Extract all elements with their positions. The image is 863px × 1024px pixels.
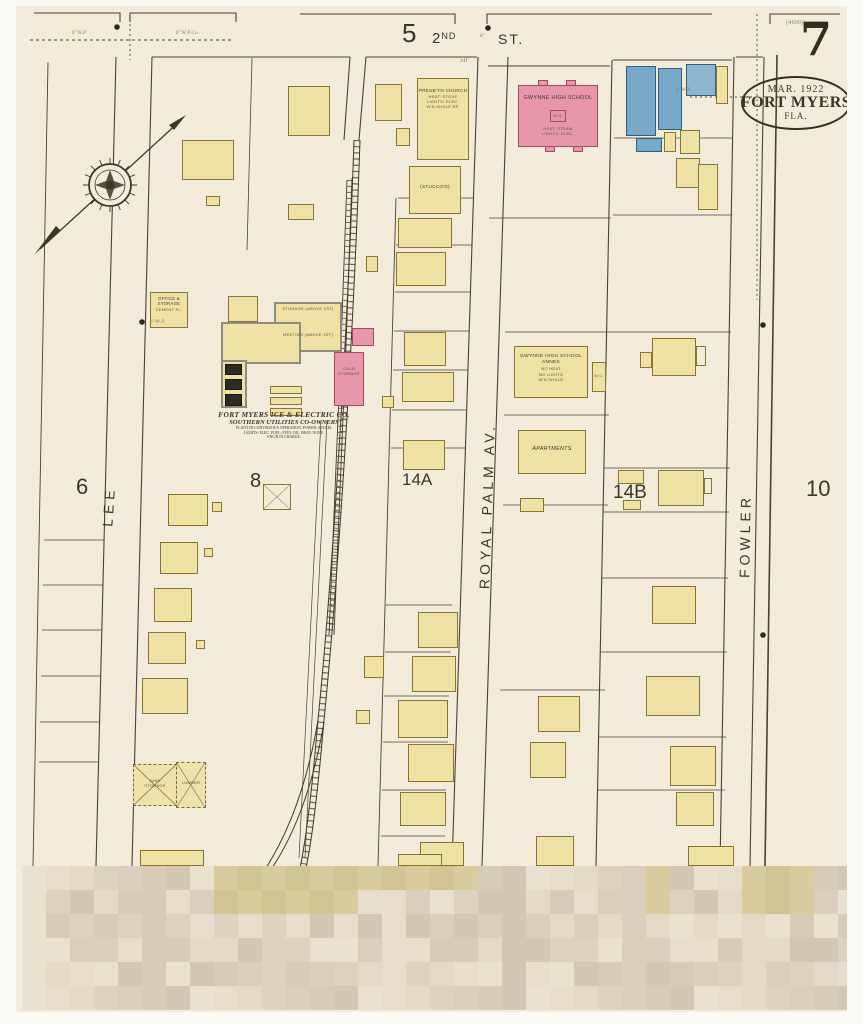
mosaic-cell bbox=[622, 986, 646, 1010]
mosaic-cell bbox=[118, 962, 142, 986]
storage-above-label: STORAGE (ABOVE 1ST) bbox=[276, 306, 340, 311]
mosaic-cell bbox=[310, 938, 334, 962]
building-outbuilding bbox=[204, 548, 213, 557]
mosaic-cell bbox=[310, 914, 334, 938]
mosaic-cell bbox=[670, 890, 694, 914]
mosaic-cell bbox=[358, 866, 382, 890]
mosaic-cell bbox=[742, 938, 766, 962]
mosaic-cell bbox=[526, 938, 550, 962]
mosaic-cell bbox=[70, 962, 94, 986]
building-cold-storage bbox=[334, 352, 364, 406]
building-dwelling bbox=[400, 792, 446, 826]
block-number-8: 8 bbox=[250, 470, 261, 493]
boiler bbox=[225, 364, 242, 375]
mosaic-cell bbox=[502, 962, 526, 986]
building-dwelling bbox=[142, 678, 188, 714]
building-dwelling bbox=[658, 470, 704, 506]
mosaic-cell bbox=[454, 938, 478, 962]
water-main-label: 6''W.P. bbox=[150, 320, 165, 327]
mosaic-cell bbox=[46, 866, 70, 890]
mosaic-cell bbox=[22, 962, 46, 986]
mosaic-cell bbox=[142, 986, 166, 1010]
mosaic-cell bbox=[766, 914, 790, 938]
mosaic-cell bbox=[790, 938, 814, 962]
stamp-state: Fla. bbox=[784, 112, 807, 121]
building-outbuilding bbox=[664, 132, 676, 152]
mosaic-cell bbox=[70, 986, 94, 1010]
building-outbuilding bbox=[288, 204, 314, 220]
stamp-city: Fort Myers bbox=[741, 95, 851, 112]
building-plant-wing bbox=[221, 322, 301, 364]
building-outbuilding bbox=[680, 130, 700, 154]
mosaic-cell bbox=[430, 986, 454, 1010]
mosaic-cell bbox=[166, 914, 190, 938]
mosaic-cell bbox=[646, 962, 670, 986]
mosaic-cell bbox=[598, 866, 622, 890]
mosaic-cell bbox=[262, 890, 286, 914]
mosaic-cell bbox=[742, 962, 766, 986]
mosaic-cell bbox=[46, 914, 70, 938]
mosaic-cell bbox=[646, 914, 670, 938]
mosaic-cell bbox=[742, 914, 766, 938]
school-entry bbox=[545, 146, 555, 152]
mosaic-cell bbox=[502, 914, 526, 938]
building-dwelling bbox=[652, 338, 696, 376]
mosaic-cell bbox=[526, 962, 550, 986]
mosaic-cell bbox=[166, 986, 190, 1010]
building-outbuilding bbox=[196, 640, 205, 649]
mosaic-cell bbox=[430, 938, 454, 962]
building-dwelling bbox=[536, 836, 574, 866]
mosaic-cell bbox=[46, 890, 70, 914]
mosaic-cell bbox=[502, 890, 526, 914]
mosaic-cell bbox=[646, 890, 670, 914]
mosaic-cell bbox=[598, 986, 622, 1010]
mosaic-cell bbox=[406, 890, 430, 914]
mosaic-cell bbox=[262, 914, 286, 938]
mosaic-cell bbox=[646, 986, 670, 1010]
mosaic-cell bbox=[526, 890, 550, 914]
mosaic-cell bbox=[190, 914, 214, 938]
mosaic-cell bbox=[382, 986, 406, 1010]
building-outbuilding bbox=[640, 352, 652, 368]
building-dwelling bbox=[676, 158, 700, 188]
second-street-name: 2ND bbox=[432, 30, 456, 47]
mosaic-cell bbox=[382, 890, 406, 914]
building-open-structure bbox=[263, 484, 291, 510]
mosaic-cell bbox=[118, 914, 142, 938]
mosaic-cell bbox=[238, 962, 262, 986]
mosaic-cell bbox=[790, 986, 814, 1010]
mosaic-cell bbox=[718, 962, 742, 986]
mosaic-cell bbox=[94, 914, 118, 938]
mosaic-cell bbox=[190, 986, 214, 1010]
mosaic-cell bbox=[406, 962, 430, 986]
mosaic-cell bbox=[622, 938, 646, 962]
building-outbuilding bbox=[396, 128, 410, 146]
plant-caption: Fort Myers Ice & Electric Co. Southern U… bbox=[218, 410, 350, 440]
mosaic-cell bbox=[142, 890, 166, 914]
mosaic-cell bbox=[238, 866, 262, 890]
mosaic-cell bbox=[406, 938, 430, 962]
building-dwelling bbox=[148, 632, 186, 664]
mosaic-cell bbox=[286, 962, 310, 986]
compass-rose-icon bbox=[34, 115, 186, 255]
mosaic-cell bbox=[790, 962, 814, 986]
building-dwelling bbox=[154, 588, 192, 622]
mosaic-cell bbox=[574, 962, 598, 986]
mosaic-cell bbox=[358, 986, 382, 1010]
mosaic-cell bbox=[190, 962, 214, 986]
building-dwelling bbox=[676, 792, 714, 826]
mosaic-cell bbox=[334, 914, 358, 938]
wc-label: W.C. bbox=[591, 373, 607, 378]
mosaic-cell bbox=[718, 938, 742, 962]
mosaic-cell bbox=[70, 938, 94, 962]
mosaic-cell bbox=[70, 866, 94, 890]
building-dwelling bbox=[530, 742, 566, 778]
mosaic-cell bbox=[238, 938, 262, 962]
mosaic-cell bbox=[478, 890, 502, 914]
mosaic-cell bbox=[166, 866, 190, 890]
mosaic-cell bbox=[454, 866, 478, 890]
building-dwelling bbox=[538, 696, 580, 732]
mosaic-cell bbox=[142, 914, 166, 938]
mosaic-cell bbox=[814, 890, 838, 914]
mosaic-cell bbox=[598, 938, 622, 962]
mosaic-cell bbox=[334, 986, 358, 1010]
building-dwelling bbox=[698, 164, 718, 210]
mosaic-cell bbox=[454, 962, 478, 986]
building-dwelling bbox=[412, 656, 456, 692]
mosaic-cell bbox=[406, 866, 430, 890]
mosaic-cell bbox=[310, 962, 334, 986]
mosaic-cell bbox=[646, 866, 670, 890]
building-concrete bbox=[626, 66, 656, 136]
mosaic-cell bbox=[742, 890, 766, 914]
mosaic-cell bbox=[406, 986, 430, 1010]
building-outbuilding bbox=[520, 498, 544, 512]
building-outbuilding bbox=[212, 502, 222, 512]
mosaic-cell bbox=[814, 962, 838, 986]
mosaic-cell bbox=[598, 914, 622, 938]
building-plant-annex bbox=[352, 328, 374, 346]
mosaic-cell bbox=[358, 914, 382, 938]
boiler bbox=[225, 394, 242, 406]
mosaic-cell bbox=[142, 962, 166, 986]
building-concrete-small bbox=[636, 138, 662, 152]
mosaic-cell bbox=[166, 890, 190, 914]
mosaic-cell bbox=[766, 986, 790, 1010]
mosaic-cell bbox=[70, 914, 94, 938]
mosaic-cell bbox=[430, 866, 454, 890]
building-dwelling bbox=[288, 86, 330, 136]
mosaic-cell bbox=[670, 938, 694, 962]
mosaic-cell bbox=[286, 914, 310, 938]
title-stamp: Mar. 1922 Fort Myers Fla. bbox=[741, 76, 851, 130]
church-label: PRESB'YN CHURCH HEAT: STOVE LIGHTS: ELEC… bbox=[416, 88, 470, 110]
water-main-label: 6''W.P. bbox=[72, 31, 87, 38]
mosaic-cell bbox=[334, 890, 358, 914]
building-repair-shop bbox=[228, 296, 258, 322]
mosaic-cell bbox=[358, 962, 382, 986]
mosaic-cell bbox=[814, 866, 838, 890]
cold-storage-label: COLDSTORAGE bbox=[333, 366, 365, 376]
mosaic-cell bbox=[214, 962, 238, 986]
mosaic-cell bbox=[550, 938, 574, 962]
building-dwelling bbox=[670, 746, 716, 786]
mosaic-cell bbox=[670, 914, 694, 938]
scan-margin bbox=[0, 0, 16, 1024]
mosaic-cell bbox=[502, 938, 526, 962]
mosaic-cell bbox=[502, 986, 526, 1010]
annex-label: GWYNNE HIGH SCHOOLANNEX NO HEAT NO LIGHT… bbox=[513, 354, 589, 382]
mosaic-cell bbox=[790, 914, 814, 938]
mosaic-cell bbox=[430, 890, 454, 914]
mosaic-cell bbox=[622, 866, 646, 890]
stuccod-label: (STUCCO'D) bbox=[408, 184, 462, 190]
mosaic-cell bbox=[574, 986, 598, 1010]
mosaic-cell bbox=[142, 938, 166, 962]
mosaic-cell bbox=[526, 986, 550, 1010]
building-dwelling bbox=[375, 84, 402, 121]
apartments-label: APARTMENTS bbox=[518, 446, 586, 453]
building-partial bbox=[398, 854, 442, 866]
mosaic-cell bbox=[286, 986, 310, 1010]
mosaic-cell bbox=[454, 986, 478, 1010]
mosaic-cell bbox=[550, 914, 574, 938]
block-number-14a: 14A bbox=[402, 470, 432, 490]
building-dwelling bbox=[688, 846, 734, 866]
mosaic-cell bbox=[478, 986, 502, 1010]
mosaic-cell bbox=[694, 890, 718, 914]
mosaic-cell bbox=[22, 866, 46, 890]
mosaic-cell bbox=[454, 914, 478, 938]
mosaic-cell bbox=[814, 938, 838, 962]
mosaic-cell bbox=[526, 914, 550, 938]
building-dwelling bbox=[182, 140, 234, 180]
mosaic-cell bbox=[478, 962, 502, 986]
scan-margin bbox=[0, 1012, 863, 1024]
mosaic-cell bbox=[622, 914, 646, 938]
mosaic-cell bbox=[334, 962, 358, 986]
mosaic-cell bbox=[598, 962, 622, 986]
school-bay bbox=[566, 80, 576, 86]
mosaic-cell bbox=[190, 866, 214, 890]
building-frame-annex bbox=[716, 66, 728, 104]
mosaic-cell bbox=[766, 890, 790, 914]
mosaic-cell bbox=[670, 986, 694, 1010]
office-label: OFFICE &STORAGE CEMENT FL. bbox=[149, 296, 189, 312]
building-outbuilding bbox=[382, 396, 394, 408]
mosaic-cell bbox=[334, 938, 358, 962]
mosaic-cell bbox=[574, 914, 598, 938]
water-main-label: 6''W.P. bbox=[676, 88, 691, 95]
second-street-suffix: ST. bbox=[498, 31, 524, 47]
mosaic-cell bbox=[718, 986, 742, 1010]
scan-margin bbox=[0, 0, 863, 6]
building-stuccoed bbox=[409, 166, 461, 214]
mosaic-cell bbox=[742, 866, 766, 890]
tank bbox=[270, 397, 302, 405]
mosaic-cell bbox=[382, 914, 406, 938]
mosaic-cell bbox=[214, 986, 238, 1010]
mosaic-cell bbox=[790, 866, 814, 890]
mosaic-cell bbox=[382, 938, 406, 962]
mosaic-cell bbox=[94, 938, 118, 962]
mosaic-cell bbox=[550, 962, 574, 986]
mosaic-cell bbox=[286, 866, 310, 890]
junk-storage-label: JUNKSTORAGE bbox=[133, 778, 177, 788]
mosaic-cell bbox=[550, 890, 574, 914]
mosaic-cell bbox=[118, 890, 142, 914]
mosaic-cell bbox=[286, 938, 310, 962]
water-main-label: 6''W.P.Co. bbox=[176, 31, 199, 38]
mosaic-cell bbox=[286, 890, 310, 914]
mosaic-cell bbox=[478, 866, 502, 890]
mosaic-cell bbox=[574, 890, 598, 914]
mosaic-cell bbox=[310, 986, 334, 1010]
mosaic-cell bbox=[310, 866, 334, 890]
sanborn-map-sheet: 5 2ND ST. 7 Mar. 1922 Fort Myers Fla. (4… bbox=[0, 0, 863, 1024]
mosaic-cell bbox=[430, 914, 454, 938]
building-dwelling bbox=[398, 700, 448, 738]
mosaic-cell bbox=[574, 866, 598, 890]
mosaic-cell bbox=[526, 866, 550, 890]
building-dwelling bbox=[646, 676, 700, 716]
street-label-fowler: FOWLER bbox=[736, 481, 754, 591]
mosaic-cell bbox=[670, 962, 694, 986]
scan-margin bbox=[847, 0, 863, 1024]
mosaic-cell bbox=[214, 938, 238, 962]
mosaic-cell bbox=[118, 866, 142, 890]
school-wg-label: W.G. bbox=[550, 113, 566, 118]
building-outbuilding bbox=[206, 196, 220, 206]
school-entry bbox=[573, 146, 583, 152]
mosaic-cell bbox=[310, 890, 334, 914]
lumber-label: LUMBER bbox=[174, 780, 208, 785]
block-number-14b: 14B bbox=[613, 482, 647, 504]
mosaic-cell bbox=[694, 914, 718, 938]
mosaic-cell bbox=[478, 938, 502, 962]
mosaic-cell bbox=[22, 890, 46, 914]
mosaic-cell bbox=[22, 938, 46, 962]
mosaic-cell bbox=[766, 866, 790, 890]
mosaic-cell bbox=[166, 938, 190, 962]
building-dwelling bbox=[403, 440, 445, 470]
mosaic-cell bbox=[70, 890, 94, 914]
redacted-blur-region bbox=[22, 866, 862, 1012]
mosaic-cell bbox=[382, 866, 406, 890]
mosaic-cell bbox=[142, 866, 166, 890]
mosaic-cell bbox=[790, 890, 814, 914]
school-notes: HEAT: STEAMLIGHTS: ELEC. bbox=[528, 126, 588, 136]
mosaic-cell bbox=[646, 938, 670, 962]
building-dwelling bbox=[404, 332, 446, 366]
mosaic-cell bbox=[430, 962, 454, 986]
building-outbuilding bbox=[356, 710, 370, 724]
frontage-dimension: 50' bbox=[460, 56, 469, 65]
mosaic-cell bbox=[814, 914, 838, 938]
school-bay bbox=[538, 80, 548, 86]
tank bbox=[270, 386, 302, 394]
mosaic-cell bbox=[94, 962, 118, 986]
sheet-number: 7 bbox=[800, 12, 832, 66]
mosaic-cell bbox=[550, 866, 574, 890]
block-number-6: 6 bbox=[76, 474, 88, 500]
mosaic-cell bbox=[118, 986, 142, 1010]
mosaic-cell bbox=[814, 986, 838, 1010]
building-dwelling bbox=[402, 372, 454, 402]
mosaic-cell bbox=[166, 962, 190, 986]
building-dwelling bbox=[418, 612, 458, 648]
mosaic-cell bbox=[502, 866, 526, 890]
building-partial bbox=[140, 850, 204, 866]
building-dwelling bbox=[652, 586, 696, 624]
mosaic-cell bbox=[46, 938, 70, 962]
building-dwelling bbox=[168, 494, 208, 526]
building-dwelling bbox=[396, 252, 446, 286]
mosaic-cell bbox=[46, 986, 70, 1010]
mosaic-cell bbox=[454, 890, 478, 914]
mosaic-cell bbox=[742, 986, 766, 1010]
mosaic-cell bbox=[718, 866, 742, 890]
building-outbuilding bbox=[364, 656, 384, 678]
mosaic-cell bbox=[262, 962, 286, 986]
block-number-10: 10 bbox=[806, 476, 830, 502]
mosaic-cell bbox=[46, 962, 70, 986]
mosaic-cell bbox=[262, 866, 286, 890]
main-size-label: 8'' bbox=[480, 34, 486, 41]
mosaic-cell bbox=[214, 866, 238, 890]
mosaic-cell bbox=[622, 890, 646, 914]
mosaic-cell bbox=[22, 986, 46, 1010]
mosaic-cell bbox=[694, 866, 718, 890]
mosaic-cell bbox=[718, 914, 742, 938]
mosaic-cell bbox=[238, 986, 262, 1010]
mosaic-cell bbox=[334, 866, 358, 890]
mosaic-cell bbox=[718, 890, 742, 914]
mosaic-cell bbox=[22, 914, 46, 938]
mosaic-cell bbox=[622, 962, 646, 986]
street-label-lee: LEE bbox=[99, 485, 118, 527]
mosaic-cell bbox=[694, 986, 718, 1010]
mosaic-cell bbox=[190, 938, 214, 962]
mosaic-cell bbox=[214, 890, 238, 914]
mosaic-cell bbox=[550, 986, 574, 1010]
mosaic-cell bbox=[94, 866, 118, 890]
meeting-above-label: MEETING (ABOVE 1ST) bbox=[276, 332, 340, 337]
mosaic-cell bbox=[766, 962, 790, 986]
mosaic-cell bbox=[358, 938, 382, 962]
mosaic-cell bbox=[262, 986, 286, 1010]
mosaic-cell bbox=[358, 890, 382, 914]
mosaic-cell bbox=[478, 914, 502, 938]
mosaic-cell bbox=[694, 938, 718, 962]
mosaic-cell bbox=[694, 962, 718, 986]
porch bbox=[696, 346, 706, 366]
mosaic-cell bbox=[214, 914, 238, 938]
boiler bbox=[225, 379, 242, 390]
mosaic-cell bbox=[238, 914, 262, 938]
mosaic-cell bbox=[94, 890, 118, 914]
building-outbuilding bbox=[366, 256, 378, 272]
mosaic-cell bbox=[670, 866, 694, 890]
mosaic-cell bbox=[238, 890, 262, 914]
mosaic-cell bbox=[262, 938, 286, 962]
mosaic-cell bbox=[118, 938, 142, 962]
mosaic-cell bbox=[406, 914, 430, 938]
